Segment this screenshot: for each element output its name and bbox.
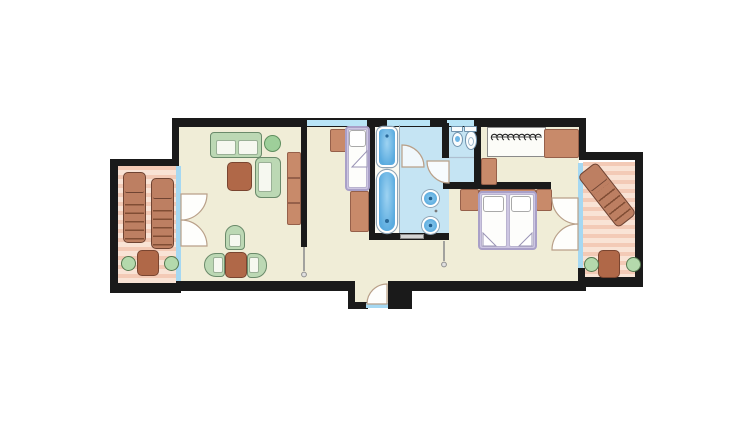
bedroom-dresser xyxy=(481,158,497,185)
single-bed-pillow xyxy=(349,130,366,147)
left-terrace-wall-top xyxy=(110,159,179,166)
dining-chair-north-cushion xyxy=(229,234,241,247)
wall-bottom-left xyxy=(176,281,352,291)
vestibule-wall-bottom xyxy=(348,302,368,309)
sofa-cushion-right xyxy=(238,140,258,155)
wall-top xyxy=(172,118,586,127)
washbasin-north xyxy=(422,190,439,207)
toilet-seat xyxy=(468,137,474,146)
bidet-drain xyxy=(455,136,460,142)
wall-below-right-glass xyxy=(578,268,585,288)
right-terrace-wall-bottom xyxy=(579,277,643,287)
washroom-sliding-door xyxy=(400,234,424,239)
desk xyxy=(350,191,369,232)
plant xyxy=(264,135,281,152)
dining-chair-west-cushion xyxy=(213,257,223,273)
double-bed-pillow-left xyxy=(483,196,504,212)
wardrobe xyxy=(487,127,546,157)
left-terrace-wall-bottom xyxy=(110,283,181,293)
floor-plan xyxy=(0,0,754,435)
bathtub xyxy=(377,170,397,233)
right-terrace-wall-top xyxy=(579,152,643,160)
corridor-floor xyxy=(369,240,449,281)
right-patio-chair-west xyxy=(584,257,599,272)
entry-threshold xyxy=(366,303,388,308)
left-terrace-wall-left xyxy=(110,159,118,293)
left-patio-table xyxy=(137,250,159,276)
dining-chair-east-cushion xyxy=(249,257,259,273)
sun-lounger-left-2 xyxy=(151,178,174,249)
sun-lounger-left-1 xyxy=(123,172,146,243)
sideboard-shelf-line xyxy=(288,202,300,204)
lounger-backrest xyxy=(125,174,144,193)
wall-wc-stub xyxy=(442,123,449,158)
bedroom-nightstand-left xyxy=(460,189,479,211)
left-patio-chair-east xyxy=(164,256,179,271)
sideboard-shelf-line xyxy=(288,177,300,179)
bedroom-cabinet xyxy=(544,129,579,158)
sideboard xyxy=(287,152,301,225)
wall-bottom-mid xyxy=(404,281,586,291)
window-above-washroom xyxy=(387,120,430,126)
sofa-cushion-left xyxy=(216,140,236,155)
bedroom-nightstand-right xyxy=(536,189,552,211)
lounger-backrest xyxy=(153,180,172,199)
lounger-slats xyxy=(153,203,172,247)
armchair-cushion xyxy=(258,162,272,192)
left-patio-chair-west xyxy=(121,256,136,271)
right-patio-table xyxy=(598,250,620,278)
lounger-slats xyxy=(125,197,144,241)
dining-table xyxy=(225,252,247,278)
wall-bedroom-top xyxy=(443,182,551,189)
shower-tray xyxy=(377,127,397,167)
washbasin-south xyxy=(422,217,439,234)
coffee-table xyxy=(227,162,252,191)
wall-living-divider xyxy=(301,123,307,247)
double-bed-pillow-right xyxy=(511,196,531,212)
right-patio-chair-east xyxy=(626,257,641,272)
